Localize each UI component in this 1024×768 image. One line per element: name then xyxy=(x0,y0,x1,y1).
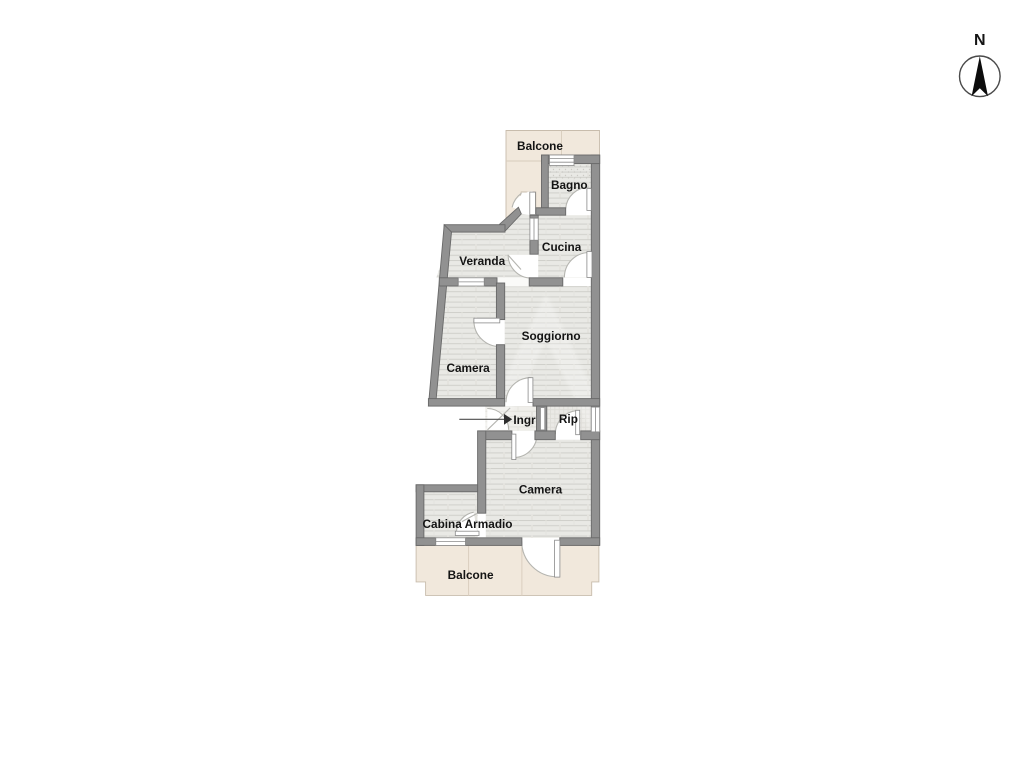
svg-text:N: N xyxy=(974,32,986,49)
svg-text:Veranda: Veranda xyxy=(459,254,505,268)
svg-text:Balcone: Balcone xyxy=(448,568,494,582)
svg-text:Soggiorno: Soggiorno xyxy=(522,329,581,343)
svg-text:Cabina Armadio: Cabina Armadio xyxy=(422,517,512,531)
svg-text:Camera: Camera xyxy=(446,361,490,375)
svg-text:Camera: Camera xyxy=(519,483,563,497)
svg-text:Bagno: Bagno xyxy=(551,178,588,192)
svg-text:Ingr: Ingr xyxy=(513,413,536,427)
svg-text:Cucina: Cucina xyxy=(542,240,582,254)
svg-text:Rip: Rip xyxy=(559,412,578,426)
svg-text:Balcone: Balcone xyxy=(517,139,563,153)
